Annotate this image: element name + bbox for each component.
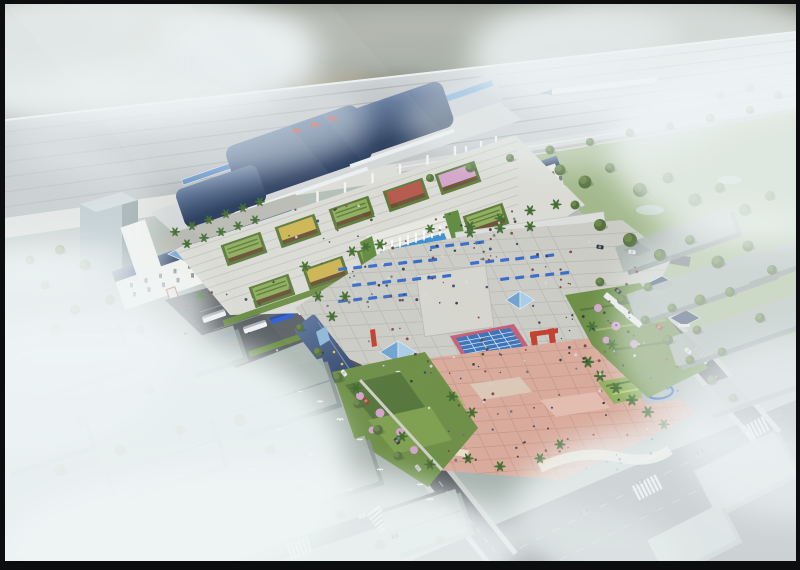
render-shape bbox=[630, 250, 633, 253]
render-shape bbox=[499, 353, 501, 355]
render-shape bbox=[394, 236, 396, 238]
render-shape bbox=[374, 213, 377, 216]
render-shape bbox=[431, 278, 433, 280]
render-shape bbox=[608, 300, 610, 302]
render-shape bbox=[515, 447, 517, 449]
render-shape bbox=[428, 275, 430, 277]
render-shape bbox=[524, 441, 526, 443]
render-shape bbox=[377, 469, 383, 470]
rendering-frame bbox=[0, 0, 800, 570]
render-shape bbox=[605, 414, 607, 416]
render-shape bbox=[526, 370, 529, 373]
render-shape bbox=[603, 311, 606, 314]
render-shape bbox=[598, 389, 601, 392]
render-shape bbox=[478, 316, 480, 318]
render-shape bbox=[430, 249, 432, 251]
render-shape bbox=[391, 247, 394, 250]
render-shape bbox=[480, 339, 483, 342]
render-shape bbox=[466, 456, 468, 458]
render-shape bbox=[226, 294, 228, 296]
render-shape bbox=[533, 407, 535, 409]
render-shape bbox=[517, 456, 519, 458]
render-shape bbox=[276, 349, 278, 351]
render-shape bbox=[588, 241, 590, 243]
render-shape bbox=[610, 384, 612, 386]
render-shape bbox=[603, 402, 605, 404]
render-shape bbox=[567, 438, 569, 440]
render-shape bbox=[547, 428, 549, 430]
render-shape bbox=[439, 302, 441, 304]
render-shape bbox=[524, 360, 526, 362]
render-shape bbox=[596, 278, 601, 283]
render-shape bbox=[545, 449, 548, 452]
render-shape bbox=[595, 220, 602, 227]
render-shape bbox=[210, 291, 213, 294]
render-shape bbox=[486, 348, 489, 351]
render-shape bbox=[481, 353, 484, 356]
render-shape bbox=[607, 320, 609, 322]
render-shape bbox=[571, 201, 576, 206]
render-shape bbox=[370, 218, 373, 221]
render-shape bbox=[624, 234, 632, 242]
render-shape bbox=[500, 372, 501, 373]
render-shape bbox=[455, 302, 458, 305]
render-shape bbox=[475, 459, 477, 461]
render-shape bbox=[551, 407, 553, 409]
render-shape bbox=[618, 399, 620, 401]
render-shape bbox=[452, 284, 455, 287]
render-shape bbox=[569, 250, 572, 253]
render-shape bbox=[337, 419, 344, 420]
render-shape bbox=[248, 332, 250, 334]
render-shape bbox=[357, 205, 360, 208]
render-shape bbox=[579, 176, 587, 184]
render-shape bbox=[357, 439, 363, 440]
render-shape bbox=[405, 240, 407, 242]
render-shape bbox=[601, 390, 603, 392]
render-shape bbox=[208, 292, 210, 294]
render-shape bbox=[245, 298, 248, 301]
aerial-rendering bbox=[5, 4, 796, 561]
render-shape bbox=[432, 257, 435, 260]
render-shape bbox=[443, 282, 445, 284]
render-shape bbox=[598, 245, 601, 248]
render-shape bbox=[592, 434, 594, 436]
rendering-canvas bbox=[5, 4, 796, 561]
render-shape bbox=[379, 216, 382, 219]
